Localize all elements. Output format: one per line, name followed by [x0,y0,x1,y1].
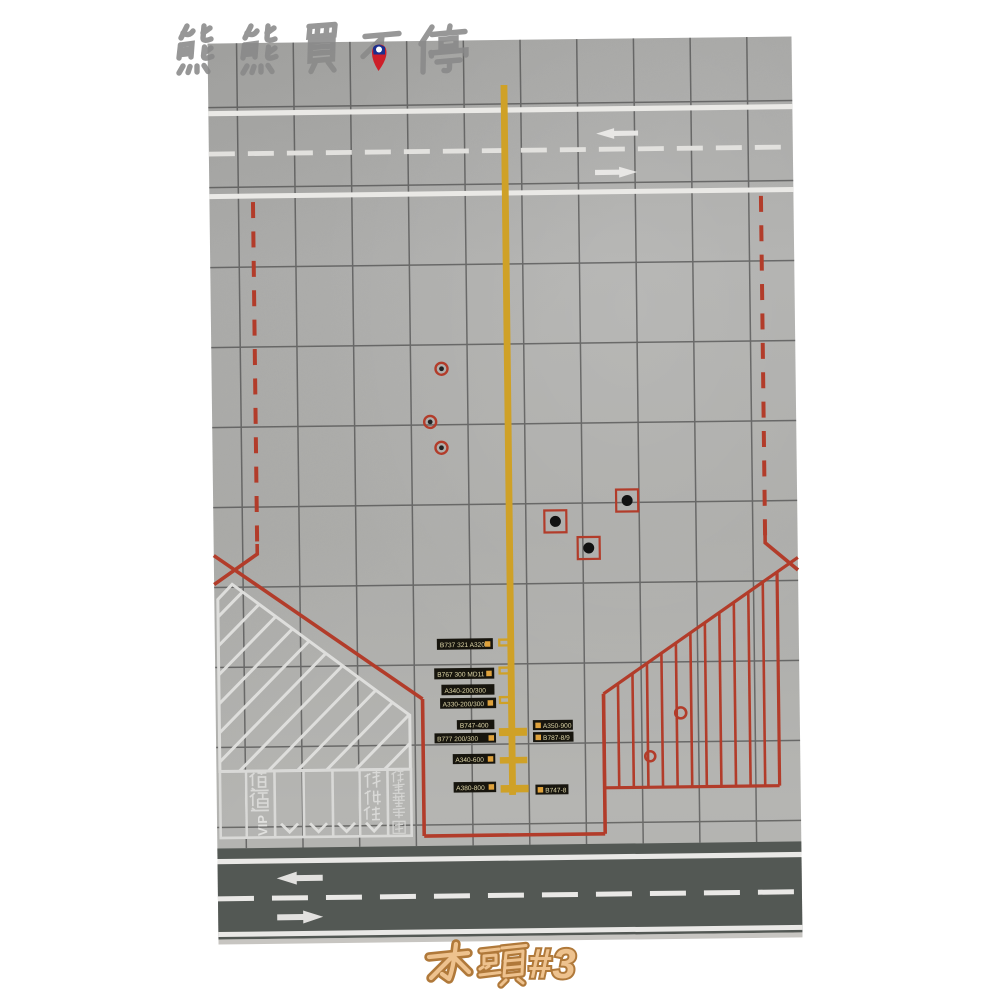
svg-text:A340-600: A340-600 [455,757,484,764]
svg-text:A350-900: A350-900 [543,723,572,730]
svg-text:B737 321 A320: B737 321 A320 [440,642,486,650]
svg-text:#3: #3 [528,940,577,987]
svg-text:A380-800: A380-800 [456,785,485,792]
svg-text:A330-200/300: A330-200/300 [443,701,485,709]
svg-text:B787-8/9: B787-8/9 [543,735,570,742]
svg-text:B747-8: B747-8 [545,787,567,794]
svg-text:B767 300 MD11: B767 300 MD11 [437,671,485,679]
svg-text:B747-400: B747-400 [460,722,489,729]
svg-text:B777 200/300: B777 200/300 [437,736,478,744]
svg-text:VIP: VIP [255,815,270,836]
svg-text:A340-200/300: A340-200/300 [444,688,486,696]
